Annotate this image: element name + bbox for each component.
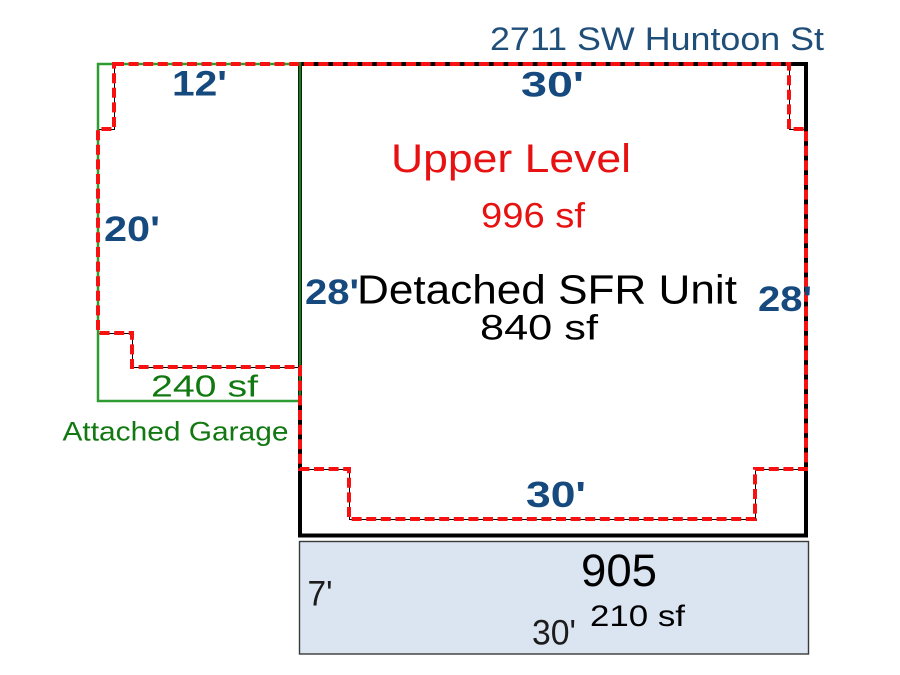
svg-text:210 sf: 210 sf [590,600,686,633]
svg-text:12': 12' [172,65,227,104]
svg-text:840 sf: 840 sf [480,309,598,348]
svg-text:30': 30' [526,474,586,515]
svg-text:28': 28' [305,273,359,312]
svg-text:240 sf: 240 sf [151,369,258,404]
svg-text:Detached SFR Unit: Detached SFR Unit [357,267,738,313]
svg-text:996 sf: 996 sf [481,197,585,236]
svg-text:30': 30' [532,614,576,653]
svg-text:28': 28' [758,280,812,319]
svg-text:Attached Garage: Attached Garage [63,417,289,447]
svg-text:30': 30' [521,66,584,105]
svg-text:7': 7' [308,575,333,614]
svg-text:2711 SW Huntoon St: 2711 SW Huntoon St [490,21,824,57]
svg-text:20': 20' [104,210,160,249]
svg-text:Upper Level: Upper Level [391,137,631,181]
svg-text:905: 905 [581,545,657,596]
